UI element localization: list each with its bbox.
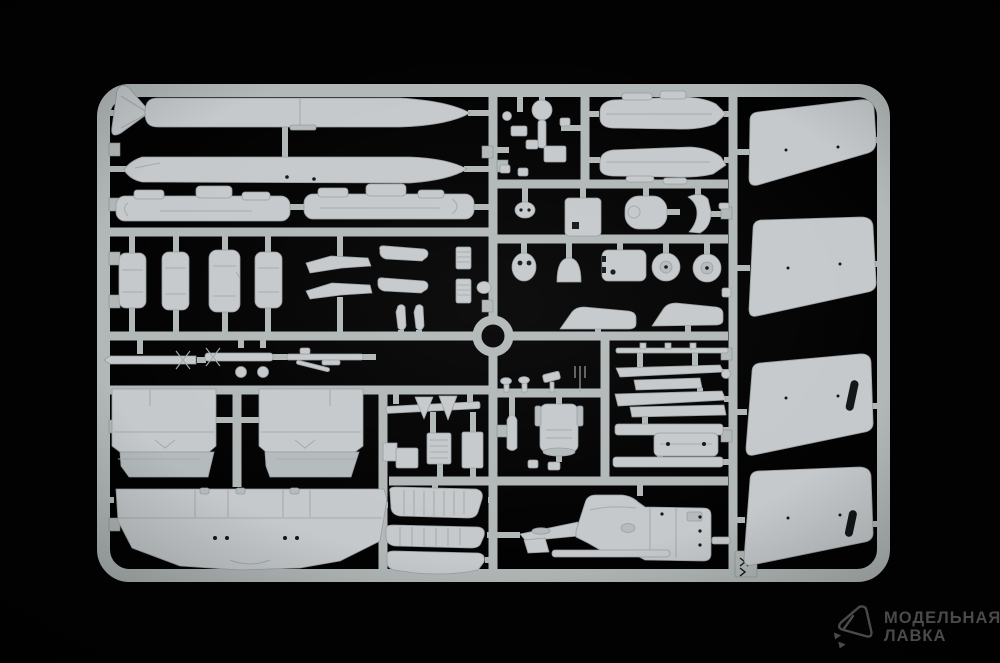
watermark-line2: ЛАВКА [884, 627, 1000, 645]
fitting-row-c [560, 303, 723, 329]
equipment-block-4 [462, 432, 483, 468]
pod-half-left [116, 186, 290, 221]
rocket-with-fins-1 [104, 351, 196, 369]
ejection-seat [535, 404, 583, 456]
nacelle-half-lower [600, 147, 726, 184]
pylon-strip-5 [613, 457, 723, 467]
fitting-row-b [512, 250, 721, 282]
attachment-peg [712, 537, 730, 544]
pylon-strip-2 [634, 378, 702, 390]
fuselage-half-with-nose-boom [520, 495, 730, 561]
seat-cell [501, 366, 586, 470]
watermark-line1: МОДЕЛЬНАЯ [884, 609, 1000, 627]
canopy-base [387, 551, 485, 574]
rocket-with-fins-2 [205, 348, 273, 366]
c-bracket [688, 194, 711, 233]
pylon-cell [613, 343, 728, 467]
control-knobs [501, 366, 586, 392]
pylon-strip-1 [616, 365, 724, 377]
ring-fitting [477, 281, 491, 293]
equipment-plate [565, 198, 601, 236]
gem-plane-icon [831, 602, 875, 652]
sprue-photo [0, 0, 1000, 663]
gear-doors [119, 250, 372, 312]
gear-door-pair [306, 256, 372, 299]
wheel-1 [652, 253, 680, 281]
grille-strip-1 [456, 247, 471, 269]
wing-upper-half-left [112, 389, 216, 477]
bracket-plate [602, 250, 646, 281]
pylon-strip-4 [630, 405, 726, 417]
gear-door-1 [119, 253, 146, 308]
ventral-fin [524, 538, 549, 553]
center-ring [477, 320, 509, 352]
gear-door-2 [162, 252, 189, 310]
equipment-block-3 [427, 433, 451, 464]
gear-door-4 [255, 252, 282, 308]
tailplane-panel-1 [749, 100, 876, 186]
teardrop-pair [396, 305, 424, 330]
watermark-text: МОДЕЛЬНАЯ ЛАВКА [884, 609, 1000, 646]
ribbed-flap-1 [390, 487, 483, 518]
wheel-2 [693, 254, 721, 282]
nose-cone-bullet [507, 415, 517, 451]
tailplane-panels [719, 100, 876, 566]
ball-fittings [236, 367, 269, 378]
ribbed-flap-2 [386, 525, 485, 548]
rounded-bulkhead [625, 196, 667, 229]
pod-half-right [304, 184, 474, 219]
photo-canvas: МОДЕЛЬНАЯ ЛАВКА [0, 0, 1000, 663]
grille-strip-2 [456, 279, 471, 303]
tailplane-panel-4 [744, 467, 873, 565]
gear-door-3 [209, 250, 240, 312]
ventral-strip [552, 550, 670, 557]
cockpit-oval [512, 253, 536, 281]
oval-fitting [515, 202, 535, 218]
exhaust-and-grilles [378, 246, 491, 330]
watermark: МОДЕЛЬНАЯ ЛАВКА [831, 600, 1000, 654]
exhaust-pipe-2 [378, 278, 428, 293]
drop-tank-lower [124, 157, 467, 183]
wing-upper-half-right [259, 389, 363, 477]
flap-cell [386, 487, 485, 574]
windscreen-rail-left [560, 307, 636, 329]
pylon-strip-3 [615, 391, 726, 406]
tailplane-panel-2 [749, 217, 876, 316]
dome-part [557, 258, 581, 282]
bomb-rack [654, 433, 718, 456]
windscreen-rail-right [652, 303, 723, 326]
pylon-rod [616, 343, 728, 353]
tailplane-panel-3 [746, 354, 873, 455]
equipment-block-2 [396, 448, 418, 468]
small-fittings-cluster [500, 100, 570, 176]
wing-lower-full-span [116, 488, 387, 570]
boom-with-fittings [287, 348, 363, 372]
fitting-row-a [515, 194, 711, 236]
exhaust-pipe-1 [380, 246, 428, 261]
